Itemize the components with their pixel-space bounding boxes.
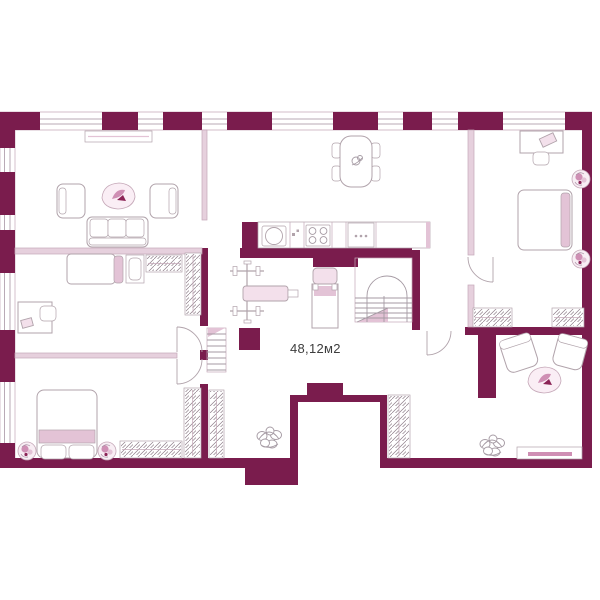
living-room bbox=[57, 131, 178, 247]
nightstand-plant bbox=[98, 442, 116, 460]
blanket-edge bbox=[39, 430, 95, 443]
kitchen-dining bbox=[258, 136, 430, 248]
door-master-bedroom bbox=[468, 257, 493, 282]
desk bbox=[520, 131, 563, 165]
desk-chair bbox=[40, 306, 56, 321]
kitchen-counter bbox=[258, 222, 430, 248]
bed-pillows bbox=[561, 193, 570, 247]
desk bbox=[18, 302, 56, 333]
workout-bench bbox=[230, 261, 298, 323]
nightstand-plant bbox=[572, 250, 590, 268]
dining-table-set bbox=[332, 136, 380, 187]
support-column bbox=[239, 328, 260, 350]
door-corridor bbox=[427, 331, 451, 355]
closet-left bbox=[473, 308, 512, 327]
dining-table bbox=[340, 136, 372, 187]
fridge bbox=[312, 268, 338, 328]
door-bedroom-2 bbox=[177, 327, 202, 352]
sofa bbox=[87, 217, 148, 247]
desk-chair bbox=[533, 152, 549, 165]
wardrobe-side bbox=[184, 388, 201, 458]
tv-icon bbox=[528, 452, 572, 456]
closet-right bbox=[552, 308, 584, 327]
armchair bbox=[499, 332, 540, 374]
armchair-right bbox=[150, 184, 178, 218]
rug-with-plant bbox=[528, 367, 561, 393]
plant-sketch bbox=[257, 427, 282, 448]
radiator bbox=[85, 131, 152, 142]
bed-pillow bbox=[41, 445, 66, 459]
corridor bbox=[473, 308, 584, 327]
floor-plan-svg: 48,12м2 bbox=[0, 0, 600, 600]
hall-wardrobe bbox=[209, 390, 224, 458]
single-bed bbox=[67, 254, 123, 284]
tv-stand bbox=[517, 447, 582, 459]
master-bedroom bbox=[518, 131, 590, 268]
wardrobe bbox=[185, 253, 201, 315]
area-label: 48,12м2 bbox=[290, 341, 341, 356]
floor-plan-canvas: 48,12м2 bbox=[0, 0, 600, 600]
crib bbox=[126, 255, 144, 283]
bed-pillow bbox=[114, 256, 123, 283]
door-bedroom-3 bbox=[177, 359, 202, 384]
wardrobe-bottom bbox=[120, 441, 182, 458]
bed-pillow bbox=[69, 445, 94, 459]
staircase-side bbox=[207, 328, 226, 372]
nightstand-plant bbox=[18, 442, 36, 460]
staircase-main bbox=[355, 258, 412, 322]
bedroom-2 bbox=[18, 253, 201, 333]
dishwasher-icon bbox=[348, 223, 374, 247]
plant-sketch bbox=[480, 435, 505, 456]
lounge-closet bbox=[388, 395, 410, 458]
double-bed bbox=[37, 390, 97, 459]
rug-with-plant bbox=[102, 183, 135, 209]
nightstand-plant bbox=[572, 170, 590, 188]
bed-master bbox=[518, 190, 572, 250]
armchair-left bbox=[57, 184, 85, 218]
closet-rail bbox=[146, 255, 182, 272]
stove-icon bbox=[306, 225, 330, 246]
bedroom-3 bbox=[18, 388, 201, 460]
